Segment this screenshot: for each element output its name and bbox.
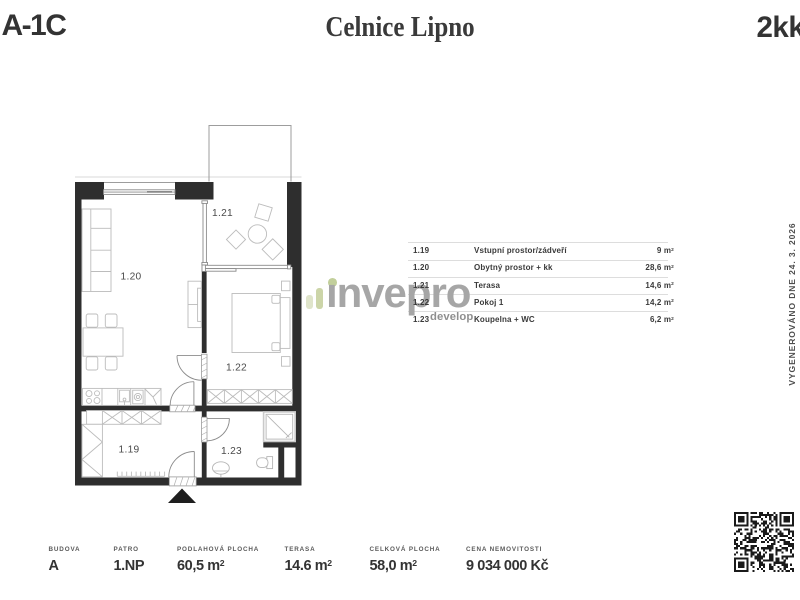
svg-text:1.20: 1.20	[120, 272, 141, 283]
svg-text:1.21: 1.21	[212, 208, 233, 219]
svg-text:1.23: 1.23	[221, 446, 242, 457]
svg-text:1.19: 1.19	[118, 444, 139, 455]
svg-text:1.22: 1.22	[226, 363, 247, 374]
